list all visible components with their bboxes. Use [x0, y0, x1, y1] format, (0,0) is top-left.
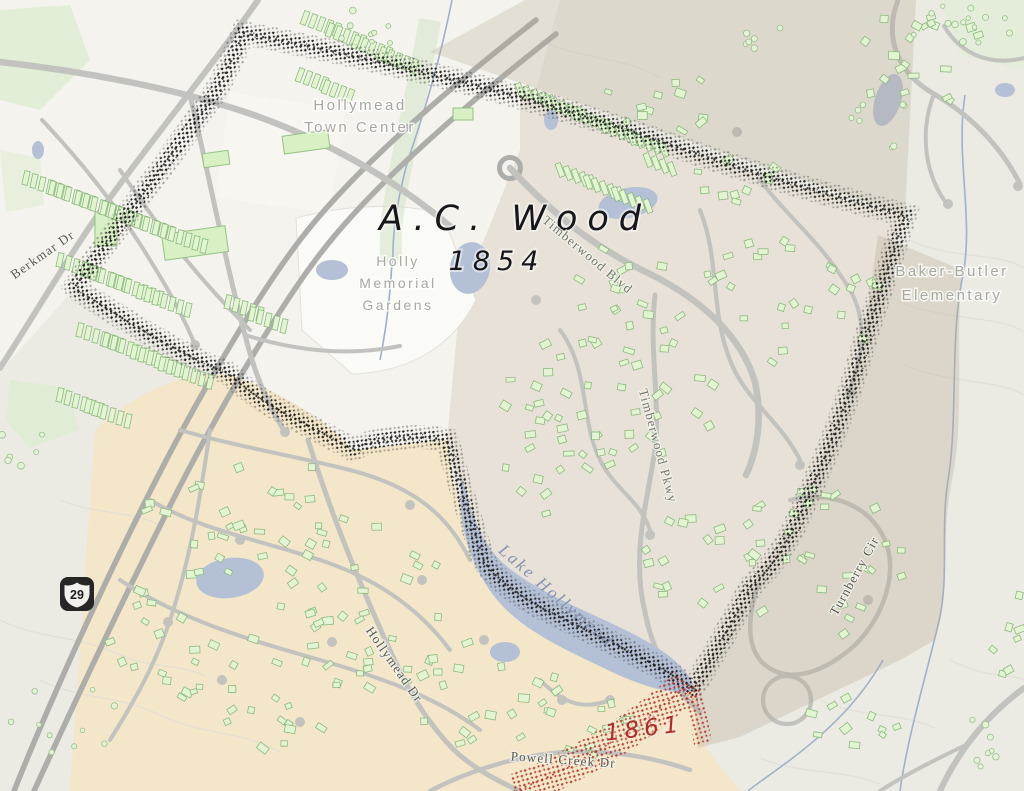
building [533, 474, 543, 483]
tree [80, 728, 85, 733]
label-parcel-owner: A.C. Wood [377, 199, 651, 239]
building [598, 707, 605, 712]
tree [855, 107, 861, 113]
label-memorial-gardens-line1: Holly [376, 253, 420, 269]
building [190, 646, 200, 653]
building [502, 464, 509, 472]
building [308, 464, 315, 471]
building [817, 586, 827, 593]
tree [891, 143, 897, 149]
building [660, 345, 669, 352]
pond [316, 260, 348, 280]
tree [989, 749, 994, 754]
building [866, 89, 874, 98]
building [718, 191, 728, 200]
culdesac-bulb [1014, 182, 1023, 191]
label-hollymead-town-center-line2: Town Center [304, 119, 416, 136]
building [940, 66, 951, 73]
building [506, 377, 515, 382]
culdesac-bulb [218, 676, 227, 685]
tree [1006, 30, 1012, 36]
tree [987, 734, 993, 740]
tree [47, 733, 52, 738]
building [820, 504, 828, 509]
building [485, 710, 497, 720]
culdesac-bulb [236, 536, 245, 545]
building [364, 658, 374, 665]
building [453, 108, 473, 120]
label-baker-butler-line1: Baker-Butler [895, 263, 1008, 280]
tree [974, 757, 980, 763]
building [625, 430, 634, 438]
tree [751, 45, 758, 52]
culdesac-bulb [418, 576, 427, 585]
building [637, 112, 647, 120]
building [592, 432, 600, 440]
building [837, 311, 845, 319]
building [694, 375, 705, 382]
building [130, 663, 138, 671]
building [704, 271, 711, 278]
building [607, 699, 615, 708]
building [322, 540, 330, 548]
building [163, 677, 172, 685]
label-baker-butler-line2: Elementary [902, 287, 1003, 304]
building [740, 316, 748, 321]
building [202, 150, 230, 167]
green-patch [0, 150, 44, 212]
building [715, 536, 724, 544]
tree [993, 754, 999, 760]
building [388, 635, 396, 641]
building [518, 694, 529, 703]
building [363, 665, 372, 673]
culdesac-bulb [558, 696, 567, 705]
building [849, 742, 860, 749]
culdesac-bulb [406, 501, 415, 510]
culdesac-bulb [944, 200, 953, 209]
building [421, 718, 428, 725]
culdesac-bulb [532, 296, 541, 305]
building [351, 564, 359, 570]
building [557, 435, 566, 444]
building [194, 568, 204, 575]
building [285, 494, 294, 500]
building [888, 51, 899, 59]
building [694, 169, 702, 174]
building [578, 304, 586, 311]
us29-shield: 29 [60, 577, 94, 611]
building [254, 529, 265, 534]
building [563, 451, 574, 456]
building [908, 73, 919, 78]
building [315, 523, 321, 529]
tree [911, 32, 916, 37]
culdesac-bulb [164, 618, 173, 627]
culdesac-bulb [328, 638, 337, 647]
building [277, 603, 285, 610]
building [248, 706, 255, 713]
building [782, 323, 789, 329]
building [880, 15, 889, 23]
tree [388, 41, 393, 46]
label-memorial-gardens-line3: Gardens [362, 297, 433, 313]
map-canvas[interactable]: Hollymead Town Center Holly Memorial Gar… [0, 0, 1024, 791]
building [305, 495, 315, 502]
tree [945, 20, 951, 26]
building [897, 548, 905, 553]
tree [849, 115, 854, 120]
building [588, 336, 597, 343]
tree [900, 102, 906, 108]
building [804, 306, 813, 314]
tree [72, 744, 77, 749]
building [778, 347, 787, 355]
tree [743, 30, 749, 36]
culdesac-bulb [296, 718, 305, 727]
building [1015, 591, 1023, 600]
tree [90, 687, 95, 692]
building [228, 685, 236, 692]
building [358, 588, 368, 594]
tree [777, 25, 783, 31]
tree [34, 450, 39, 455]
map-viewport[interactable]: Hollymead Town Center Holly Memorial Gar… [0, 0, 1024, 791]
tree [751, 36, 757, 42]
building [678, 518, 689, 527]
culdesac-bulb [796, 461, 805, 470]
building [307, 642, 319, 649]
building [758, 249, 768, 255]
tree [860, 102, 866, 108]
building [434, 669, 443, 675]
building [525, 431, 536, 439]
building [453, 664, 463, 673]
tree [370, 39, 375, 44]
tree [972, 25, 977, 30]
tree [982, 721, 989, 728]
building [578, 339, 586, 347]
tree [929, 11, 935, 17]
tree [976, 40, 981, 45]
building [617, 384, 626, 391]
tree [49, 750, 54, 755]
tree [857, 118, 862, 123]
tree [966, 16, 971, 21]
shield-number: 29 [70, 588, 84, 602]
building [497, 662, 505, 670]
tree [5, 457, 11, 463]
tree [970, 717, 975, 722]
tree [0, 431, 6, 438]
tree [746, 39, 752, 45]
building [700, 187, 709, 194]
building [435, 613, 442, 620]
building [625, 262, 632, 270]
building [428, 654, 437, 663]
building [190, 540, 198, 548]
building [597, 449, 606, 457]
building [196, 684, 203, 689]
building [356, 671, 363, 676]
building [626, 321, 634, 330]
building [658, 591, 667, 597]
building [284, 724, 296, 733]
building [744, 239, 754, 248]
building [749, 560, 755, 566]
tree [8, 719, 14, 725]
label-hollymead-town-center-line1: Hollymead [313, 97, 406, 114]
building [643, 310, 654, 319]
tree [339, 36, 345, 42]
building [631, 409, 640, 416]
tree [961, 20, 966, 25]
tree [941, 4, 945, 8]
building [753, 506, 762, 511]
tree [978, 764, 983, 769]
building [657, 262, 667, 271]
tree [1002, 16, 1007, 21]
tree [37, 722, 42, 727]
tree [40, 432, 45, 437]
tree [111, 703, 117, 709]
tree [18, 462, 25, 469]
building [208, 532, 215, 540]
tree [349, 7, 356, 14]
building [584, 382, 591, 389]
building [756, 540, 765, 547]
tree [386, 24, 391, 29]
tree [372, 30, 377, 35]
building [333, 682, 340, 688]
tree [347, 23, 353, 29]
tree [983, 14, 989, 20]
tree [32, 689, 38, 695]
building [147, 599, 156, 606]
building [372, 523, 382, 530]
pond [490, 642, 520, 662]
culdesac-bulb [281, 428, 290, 437]
pond [995, 83, 1015, 97]
tree [960, 39, 967, 46]
building [281, 741, 287, 747]
tree [102, 741, 107, 746]
tree [952, 21, 959, 28]
culdesac-bulb [480, 636, 489, 645]
label-parcel-year: 1854 [449, 246, 546, 277]
culdesac-bulb [646, 531, 655, 540]
building [813, 732, 822, 738]
building [543, 368, 552, 376]
building [577, 410, 588, 420]
building [672, 79, 680, 86]
tree [968, 5, 974, 11]
label-memorial-gardens-line2: Memorial [359, 275, 437, 291]
pond [32, 141, 44, 159]
building [785, 245, 795, 252]
